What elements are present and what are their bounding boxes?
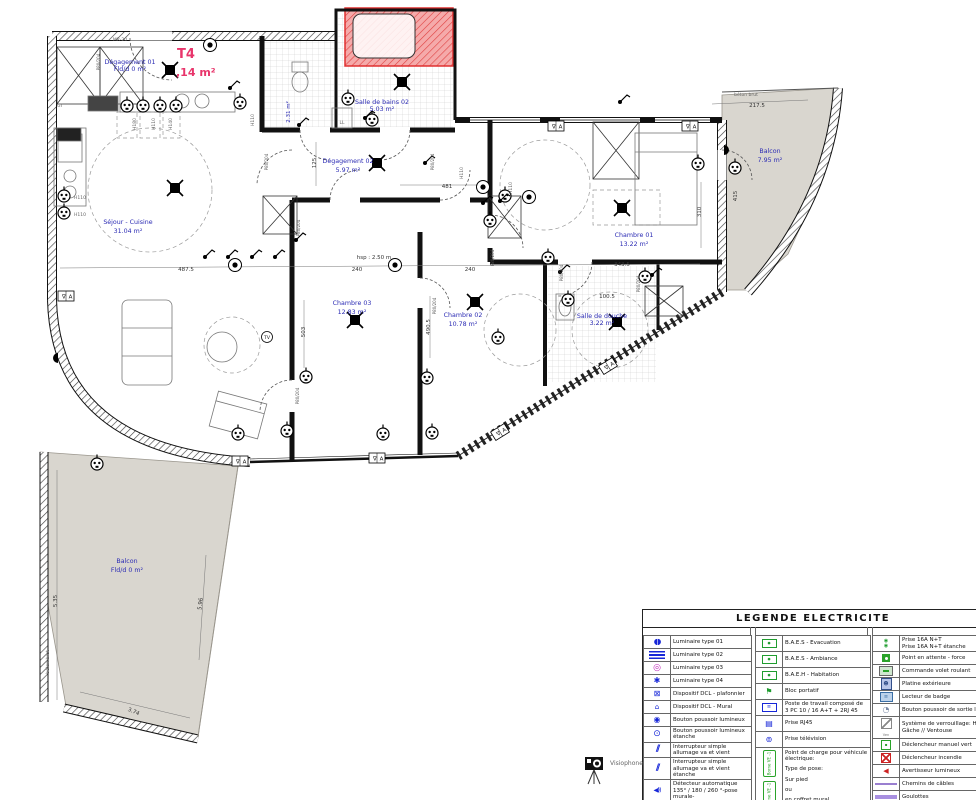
- goulottes-icon: [875, 795, 897, 799]
- legend-icon-cell: [756, 636, 783, 651]
- legend-row: Goulottes: [873, 791, 976, 800]
- switch-symbol: [250, 250, 262, 259]
- legend-label-cell: Bloc portatif: [783, 684, 870, 699]
- legend-row: Point en attente - force: [873, 652, 976, 665]
- legend-label-cell: Point en attente - force: [900, 652, 976, 664]
- legend-icon-cell: [873, 739, 900, 751]
- legend-label-cell: Lecteur de badge: [900, 691, 976, 703]
- legend-icon-cell: [756, 652, 783, 667]
- avertisseur-lumineux-icon: [883, 768, 888, 775]
- poste-de-travail-icon: [762, 703, 777, 712]
- legend-label-cell: Dispositif DCL - Mural: [671, 701, 751, 713]
- systeme-verrouillage-icon: [881, 718, 892, 729]
- dimension-label: H140: [168, 118, 174, 130]
- legend-row: B.A.E.S - Evacuation: [756, 636, 870, 652]
- svg-text:∇A: ∇A: [61, 294, 75, 300]
- dimension-label: béton brut: [44, 650, 51, 674]
- apartment-title: T4: [177, 47, 195, 62]
- legend-row: Borne VE -1Borne VE -1Point de charge po…: [756, 748, 870, 800]
- legend-label-cell: Luminaire type 04: [671, 675, 751, 687]
- interrupteur-va-et-vient-icon: [656, 745, 659, 754]
- legend-icon-cell: [644, 727, 671, 742]
- legend-label-cell: Commande volet roulant: [900, 665, 976, 677]
- dimension-label: 415: [733, 190, 739, 201]
- legend-icon-cell: [873, 704, 900, 716]
- socket-symbol: [234, 94, 246, 110]
- baes-evacuation-icon: [762, 639, 777, 648]
- dimension-label: H110: [508, 182, 514, 194]
- declencheur-manuel-vert-icon: [881, 740, 891, 750]
- prise-rj45-icon: [765, 720, 773, 728]
- legend-row: Chemins de câbles: [873, 778, 976, 791]
- legend-icon-cell: [644, 662, 671, 674]
- legend-icon-cell: [644, 675, 671, 687]
- legend-icon-cell: [756, 732, 783, 747]
- legend-icon-cell: [873, 652, 900, 664]
- socket-symbol: [421, 369, 433, 385]
- legend-row: Bloc portatif: [756, 684, 870, 700]
- dimension-label: 487.5: [178, 267, 194, 273]
- tv-symbol: TV: [262, 332, 273, 343]
- door-label: P80/204: [264, 153, 269, 170]
- legend-label-cell: Bouton poussoir de sortie libre: [900, 704, 976, 716]
- balcony-top-right: [712, 88, 838, 292]
- legend-row: Prise RJ45: [756, 716, 870, 732]
- legend-label-cell: Bouton poussoir lumineux étanche: [671, 727, 751, 742]
- borne-ve-icon: Borne VE -1: [763, 781, 776, 800]
- va-symbol: ∇A: [369, 453, 386, 463]
- dimension-label: H110: [74, 195, 86, 201]
- dimension-label: H110: [151, 118, 157, 130]
- legend-label-cell: Système de verrouillage: Hors lotGâche /…: [900, 717, 976, 738]
- declencheur-incendie-icon: [881, 753, 891, 763]
- door-label: P80/204: [296, 219, 301, 236]
- legend-icon-cell: [873, 791, 900, 800]
- socket-symbol: [377, 425, 389, 441]
- light-symbol: [523, 191, 536, 204]
- room-label: Séjour - Cuisine31.04 m²: [103, 218, 152, 235]
- legend-label-cell: Déclencheur manuel vert: [900, 739, 976, 751]
- legend-row: Interrupteur simple allumage va et vient: [644, 743, 751, 759]
- dimension-label: 240: [352, 267, 363, 273]
- legend-column: Prise 16A N+TPrise 16A N+T étanchePoint …: [872, 635, 976, 800]
- legend-icon-cell: [644, 780, 671, 800]
- svg-text:∇A: ∇A: [372, 456, 386, 462]
- legend-label-cell: Prise 16A N+TPrise 16A N+T étanche: [900, 636, 976, 651]
- socket-symbol: [692, 155, 704, 171]
- dcl-symbol: [614, 200, 630, 216]
- bouton-poussoir-lumineux-etanche-icon: [653, 730, 661, 739]
- legend-icon-cell: Borne VE -1Borne VE -1: [756, 748, 783, 800]
- dimension-label: 217.5: [749, 103, 765, 109]
- svg-text:∇A: ∇A: [235, 459, 249, 465]
- luminaire-type-03-icon: [653, 664, 661, 673]
- legend-label-cell: Interrupteur simple allumage va et vient…: [671, 758, 751, 779]
- door-label: P80/204: [636, 275, 641, 292]
- legend-icon-cell: [756, 700, 783, 715]
- legend-label-cell: B.A.E.S - Evacuation: [783, 636, 870, 651]
- dcl-mural-icon: [655, 704, 659, 711]
- legend-icon-cell: [644, 649, 671, 661]
- point-attente-force-icon: [882, 654, 890, 662]
- room-label: Chambre 0210.78 m²: [444, 312, 483, 328]
- apartment-area: ,14 m²: [176, 66, 216, 79]
- legend-icon-cell: [873, 752, 900, 764]
- detecteur-automatique-mural-icon: [653, 787, 660, 794]
- legend-row: Prise 16A N+TPrise 16A N+T étanche: [873, 636, 976, 652]
- legend-icon-cell: [873, 665, 900, 677]
- door-label: P80/204: [432, 297, 437, 314]
- socket-symbol: [300, 368, 312, 384]
- legend-label-cell: Point de charge pour véhicule électrique…: [783, 748, 870, 800]
- bloc-portatif-icon: [765, 688, 772, 696]
- legend-label-cell: Luminaire type 03: [671, 662, 751, 674]
- legend-row: Prise télévision: [756, 732, 870, 748]
- legend-label-cell: Poste de travail composé de 3 PC 10 / 16…: [783, 700, 870, 715]
- legend-row: Commande volet roulant: [873, 665, 976, 678]
- legend-row: VenSystème de verrouillage: Hors lotGâch…: [873, 717, 976, 739]
- dimension-label: 490.5: [426, 319, 432, 335]
- legend-label-cell: Luminaire type 01: [671, 636, 751, 648]
- legend-row: Luminaire type 02: [644, 649, 751, 662]
- legend-label-cell: Avertisseur lumineux: [900, 765, 976, 777]
- legend-row: Bouton poussoir lumineux étanche: [644, 727, 751, 743]
- dimension-label: MR-20: [113, 37, 127, 43]
- socket-symbol: [170, 97, 182, 113]
- legend-label-cell: Détecteur automatique 135° / 180 / 260 °…: [671, 780, 751, 800]
- dimension-label: H110: [459, 167, 465, 179]
- legend-icon-cell: [756, 716, 783, 731]
- legend-label-cell: Luminaire type 02: [671, 649, 751, 661]
- legend-label-cell: Bouton poussoir lumineux: [671, 714, 751, 726]
- dimension-label: 5.35: [53, 594, 59, 607]
- luminaire-type-04-icon: [654, 677, 661, 685]
- socket-symbol: [542, 249, 554, 265]
- legend-row: Déclencheur incendie: [873, 752, 976, 765]
- legend-icon-cell: [644, 758, 671, 779]
- legend-icon-cell: [873, 765, 900, 777]
- legend-icon-cell: [644, 636, 671, 648]
- legend-row: Détecteur automatique 135° / 180 / 260 °…: [644, 780, 751, 800]
- platine-exterieure-icon: [881, 678, 892, 690]
- legend-row: Dispositif DCL - plafonnier: [644, 688, 751, 701]
- legend-icon-cell: [644, 714, 671, 726]
- lecteur-badge-icon: [880, 692, 893, 702]
- legend-label-cell: Prise télévision: [783, 732, 870, 747]
- borne-ve-icon: Borne VE -1: [763, 750, 776, 777]
- dimension-label: hsp : 2.50 m: [357, 255, 392, 261]
- socket-symbol: [121, 97, 133, 113]
- bouton-sortie-libre-icon: [883, 706, 890, 714]
- switch-symbol: [228, 81, 240, 90]
- room-label: Dégagement 025.97 m²: [323, 157, 374, 174]
- legend-label-cell: Chemins de câbles: [900, 778, 976, 790]
- legend-icon-cell: [873, 778, 900, 790]
- dimension-label: 481: [442, 184, 453, 190]
- red-highlight-zone: [345, 8, 453, 66]
- legend-row: Luminaire type 03: [644, 662, 751, 675]
- va-symbol: ∇A: [232, 456, 249, 466]
- legend-label-cell: Goulottes: [900, 791, 976, 800]
- legend-icon-cell: [756, 684, 783, 699]
- legend-label-cell: B.A.E.S - Ambiance: [783, 652, 870, 667]
- legend-icon-cell: [644, 688, 671, 700]
- baeh-habitation-icon: [762, 671, 777, 680]
- light-symbol: [477, 181, 490, 194]
- legend-icon-cell: [873, 678, 900, 690]
- socket-symbol: [492, 329, 504, 345]
- legend-row: Lecteur de badge: [873, 691, 976, 704]
- dimension-label: 125: [312, 157, 318, 168]
- bouton-poussoir-lumineux-icon: [654, 716, 661, 724]
- luminaire-type-02-icon: [649, 651, 665, 659]
- dimension-label: H110: [250, 114, 256, 126]
- legend-row: Dispositif DCL - Mural: [644, 701, 751, 714]
- legend-row: B.A.E.S - Ambiance: [756, 652, 870, 668]
- commande-volet-roulant-icon: [879, 666, 893, 676]
- door-label: P80/204: [490, 249, 495, 266]
- visiophone-label: Visiophone: [610, 760, 643, 767]
- svg-text:TV: TV: [263, 335, 271, 341]
- dimension-label: H110: [74, 212, 86, 218]
- switch-symbol: [618, 95, 630, 104]
- legend-column: Luminaire type 01Luminaire type 02Lumina…: [643, 635, 752, 800]
- switch-symbol: [203, 250, 215, 259]
- socket-symbol: [58, 187, 70, 203]
- room-label: Chambre 0312.83 m²: [333, 300, 372, 316]
- baes-ambiance-icon: [762, 655, 777, 664]
- socket-symbol: [426, 424, 438, 440]
- legend-row: Déclencheur manuel vert: [873, 739, 976, 752]
- socket-symbol: [154, 97, 166, 113]
- legend-row: Luminaire type 01: [644, 636, 751, 649]
- semi-symbol: [53, 353, 58, 363]
- legend-label-cell: Déclencheur incendie: [900, 752, 976, 764]
- dimension-label: 100.5: [599, 294, 615, 300]
- legend-title: LEGENDE ELECTRICITE: [643, 610, 976, 628]
- dimension-label: béton brut: [734, 91, 758, 98]
- light-symbol: [229, 259, 242, 272]
- legend-icon-cell: Ven: [873, 717, 900, 738]
- wc-tiles: [264, 38, 334, 128]
- dimension-label: 343.5: [614, 262, 630, 268]
- legend-label-cell: B.A.E.H - Habitation: [783, 668, 870, 683]
- legend-row: Interrupteur simple allumage va et vient…: [644, 758, 751, 780]
- legend-icon-cell: [644, 743, 671, 758]
- switch-symbol: [226, 250, 238, 259]
- luminaire-type-01-icon: [654, 638, 660, 646]
- switch-symbol: [273, 250, 285, 259]
- balcony-bottom-left: [40, 452, 238, 739]
- legend-icon-cell: [873, 691, 900, 703]
- va-symbol: ∇A: [58, 291, 75, 301]
- dimension-label: H180: [132, 118, 138, 130]
- va-symbol: ∇A: [682, 121, 699, 131]
- dimension-label: LL: [339, 120, 345, 126]
- socket-symbol: [232, 425, 244, 441]
- door-label: P80/204: [295, 387, 300, 404]
- legend-label-cell: Dispositif DCL - plafonnier: [671, 688, 751, 700]
- legend-icon-cell: [644, 701, 671, 713]
- legend-row: B.A.E.H - Habitation: [756, 668, 870, 684]
- legend-column: B.A.E.S - EvacuationB.A.E.S - AmbianceB.…: [755, 635, 871, 800]
- prise-16a-icon: [884, 639, 888, 648]
- legend-label-cell: Platine extérieure: [900, 678, 976, 690]
- socket-symbol: [484, 212, 496, 228]
- door-label: P80/204: [559, 264, 564, 281]
- visiophone-legend-item: Visiophone: [584, 752, 643, 786]
- door-label: P80/204: [430, 153, 435, 170]
- legend-icon-cell: [756, 668, 783, 683]
- interrupteur-va-et-vient-etanche-icon: [656, 764, 659, 773]
- dimension-label: 2.31 m²: [285, 101, 292, 123]
- legend-row: Bouton poussoir de sortie libre: [873, 704, 976, 717]
- svg-text:∇A: ∇A: [685, 124, 699, 130]
- legend-table: LEGENDE ELECTRICITE Luminaire type 01Lum…: [642, 609, 976, 800]
- legend-row: Platine extérieure: [873, 678, 976, 691]
- dcl-symbol: [467, 294, 483, 310]
- door-label: P80/204: [96, 53, 101, 70]
- light-symbol: [204, 39, 217, 52]
- dimension-label: 240: [465, 267, 476, 273]
- legend-icon-cell: [873, 636, 900, 651]
- chemins-de-cables-icon: [875, 783, 897, 785]
- icon-caption: Ven: [883, 733, 890, 737]
- room-label: Chambre 0113.22 m²: [615, 232, 654, 248]
- legend-row: Luminaire type 04: [644, 675, 751, 688]
- svg-text:∇A: ∇A: [551, 124, 565, 130]
- dimension-label: GT: [57, 103, 63, 109]
- dimension-label: 503: [301, 326, 307, 337]
- floorplan-page: ∇A∇A∇A∇A∇A∇A∇ATV Dégagement 01Fld/d 0 m²…: [0, 0, 976, 800]
- dcl-plafonnier-icon: [654, 690, 661, 698]
- dimension-label: 310: [697, 206, 703, 217]
- visiophone-icon: [584, 752, 606, 786]
- prise-television-icon: [766, 736, 773, 744]
- room-label: Dégagement 01Fld/d 0 m²: [105, 58, 156, 73]
- legend-label-cell: Prise RJ45: [783, 716, 870, 731]
- dcl-symbol: [167, 180, 183, 196]
- va-symbol: ∇A: [548, 121, 565, 131]
- legend-row: Avertisseur lumineux: [873, 765, 976, 778]
- legend-row: Bouton poussoir lumineux: [644, 714, 751, 727]
- legend-row: Poste de travail composé de 3 PC 10 / 16…: [756, 700, 870, 716]
- legend-label-cell: Interrupteur simple allumage va et vient: [671, 743, 751, 758]
